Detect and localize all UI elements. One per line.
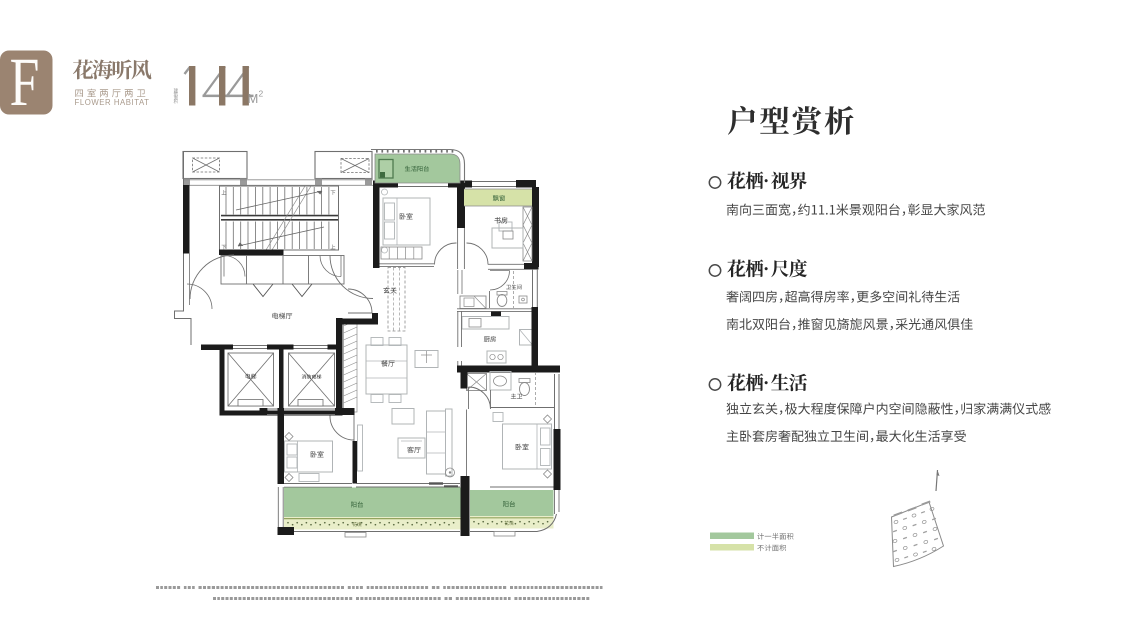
- svg-text:2: 2: [259, 89, 264, 99]
- svg-text:M: M: [248, 91, 259, 106]
- svg-text:FLOWER HABITAT: FLOWER HABITAT: [75, 98, 150, 107]
